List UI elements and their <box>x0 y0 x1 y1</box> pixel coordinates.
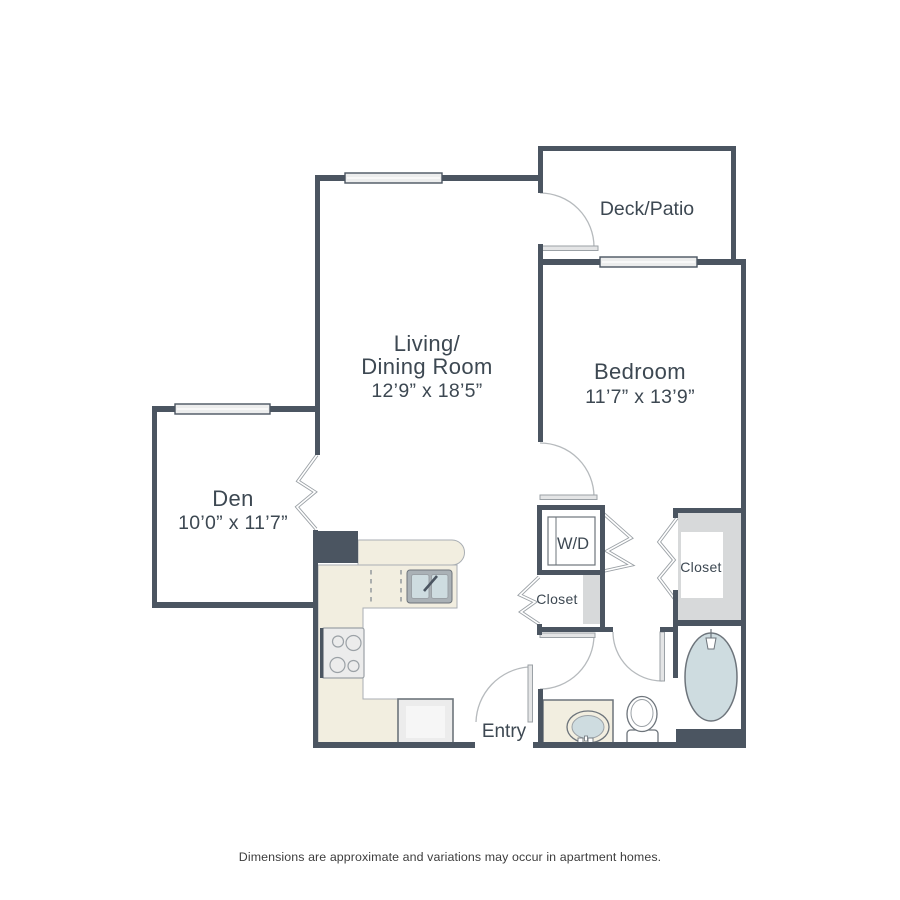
labels: Deck/Patio Living/ Dining Room 12’9” x 1… <box>178 198 722 864</box>
bathroom-hall-door-arc <box>540 635 594 689</box>
label-den: Den <box>212 486 254 511</box>
wall-segment <box>152 406 157 608</box>
wall-segment <box>313 742 475 748</box>
hall-closet-shading <box>583 575 600 624</box>
wall-segment <box>538 263 543 442</box>
label-bedroom: Bedroom <box>594 359 686 384</box>
refrigerator-highlight <box>406 706 445 738</box>
label-deck-patio: Deck/Patio <box>600 198 694 220</box>
bedroom-door-arc <box>540 443 594 497</box>
label-entry: Entry <box>482 721 527 742</box>
walls <box>152 146 746 748</box>
kitchen-peninsula-counter <box>358 540 465 565</box>
label-living-line1: Living/ <box>394 331 461 356</box>
wall-segment <box>538 146 543 193</box>
bathroom-bedroom-door-leaf <box>660 632 665 681</box>
stove-burner <box>348 661 359 672</box>
stove-edge <box>320 628 324 678</box>
floor-plan-svg: Deck/Patio Living/ Dining Room 12’9” x 1… <box>0 0 900 900</box>
label-bedroom-closet: Closet <box>680 559 721 575</box>
wall-segment <box>152 602 318 608</box>
deck-door-leaf <box>540 246 598 251</box>
entry-door-leaf <box>528 665 533 722</box>
wall-segment <box>537 570 605 575</box>
wall-segment <box>538 244 543 259</box>
wall-segment <box>673 590 678 678</box>
wall-segment <box>317 531 358 563</box>
wall-segment <box>741 259 746 748</box>
bathroom-sink-basin <box>572 716 604 739</box>
wall-segment <box>537 505 542 575</box>
bathroom-bedroom-door-arc <box>613 632 662 681</box>
stove-burner <box>346 636 361 651</box>
disclaimer-text: Dimensions are approximate and variation… <box>239 850 661 864</box>
bathroom-fixtures <box>543 629 737 746</box>
stove-burner <box>333 636 344 647</box>
wall-segment <box>537 627 613 632</box>
entry-door-arc <box>476 667 528 722</box>
label-washer-dryer: W/D <box>557 535 589 553</box>
toilet-seat <box>631 700 653 727</box>
wall-segment <box>538 689 543 748</box>
wall-segment <box>673 620 746 626</box>
bedroom-door-leaf <box>540 495 597 500</box>
stove-burner <box>330 658 345 673</box>
wall-segment <box>673 508 746 513</box>
bathtub-faucet <box>706 638 716 649</box>
wall-segment <box>537 505 605 510</box>
bathroom-hall-door-leaf <box>540 633 595 638</box>
wall-segment <box>676 729 746 748</box>
label-den-dims: 10’0” x 11’7” <box>178 512 288 534</box>
sink-faucet-spout <box>585 736 588 741</box>
doors <box>476 193 665 722</box>
wall-segment <box>538 146 736 151</box>
wall-segment <box>315 175 320 455</box>
floor-plan-page: Deck/Patio Living/ Dining Room 12’9” x 1… <box>0 0 900 900</box>
label-hall-closet: Closet <box>536 591 577 607</box>
label-living-dims: 12’9” x 18’5” <box>371 380 482 402</box>
wall-segment <box>731 146 736 264</box>
deck-door-arc <box>540 193 594 247</box>
wall-segment <box>600 505 605 632</box>
label-living-line2: Dining Room <box>361 354 493 379</box>
label-bedroom-dims: 11’7” x 13’9” <box>585 386 695 408</box>
